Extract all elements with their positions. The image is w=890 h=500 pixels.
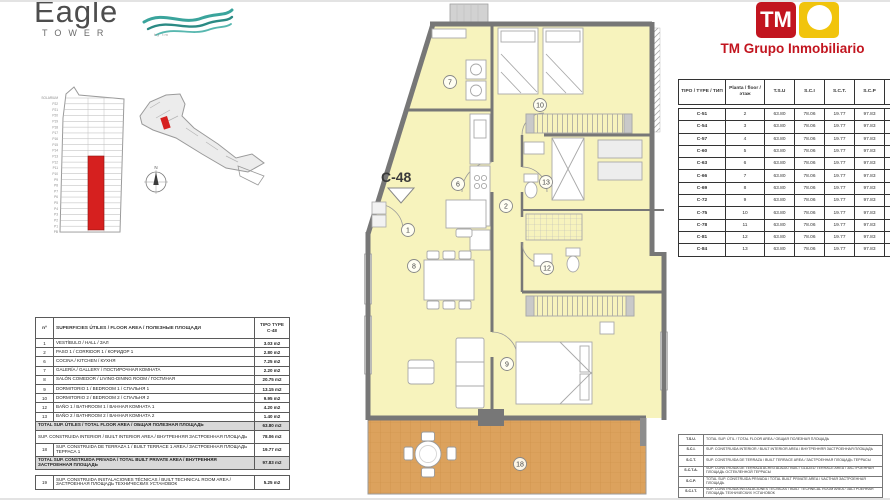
areas-cell: 9.95 m2 (255, 394, 290, 403)
areas-cell: PASO 1 / CORRIDOR 1 / КОРИДОР 1 (54, 348, 255, 357)
types-cell: 3 (726, 121, 765, 133)
types-cell: 5.25 (885, 231, 890, 243)
types-cell: C-60 (679, 145, 726, 157)
types-table-row: C-66763.8078.0619.7797.835.25 (679, 170, 890, 182)
room-label-bedroom2: 10 (534, 99, 547, 112)
areas-cell: DORMITORIO 2 / BEDROOM 2 / СПАЛЬНЯ 2 (54, 394, 255, 403)
types-cell: 11 (726, 219, 765, 231)
legend-cell: SUP. CONSTRUIDA DE TERRAZA / BUILT TERRA… (704, 456, 883, 467)
types-cell: 97.83 (855, 195, 885, 207)
areas-header-type: TIPO TYPE C-48 (255, 318, 290, 339)
areas-table: nº SUPERFICIES ÚTILES / FLOOR AREA / ПОЛ… (35, 317, 290, 470)
legend-row: T.S.U.TOTAL SUP. ÚTIL / TOTAL FLOOR AREA… (679, 435, 883, 446)
areas-cell: SALÓN COMEDOR / LIVING-DINING ROOM / ГОС… (54, 375, 255, 384)
types-table-row: C-841363.8078.0619.7797.835.25 (679, 244, 890, 256)
areas-cell: 4.20 m2 (255, 403, 290, 412)
svg-text:8: 8 (412, 264, 416, 271)
types-cell: 63.80 (765, 195, 795, 207)
types-cell: 78.06 (795, 231, 825, 243)
abbreviation-legend-wrap: T.S.U.TOTAL SUP. ÚTIL / TOTAL FLOOR AREA… (678, 434, 883, 498)
areas-cell: 63.80 m2 (255, 421, 290, 430)
areas-cell: TOTAL SUP. ÚTILES / TOTAL FLOOR AREA / О… (36, 421, 255, 430)
types-cell: 7 (726, 170, 765, 182)
room-label-corridor: 2 (500, 200, 513, 213)
terrace-pillar (478, 409, 504, 426)
areas-cell: 8 (36, 375, 54, 384)
areas-table-row: 13BAÑO 2 / BATHROOM 2 / ВАННАЯ КОМНАТА 2… (36, 412, 290, 421)
areas-cell: 18 (36, 443, 54, 456)
areas-cell: 5.25 m2 (255, 475, 290, 489)
types-cell: 63.80 (765, 207, 795, 219)
areas-table-row: 19SUP. CONSTRUIDA INSTALACIONES TÉCNICAS… (36, 475, 290, 489)
types-header-cell: S.C.P (855, 80, 885, 105)
types-cell: 78.06 (795, 207, 825, 219)
abbreviation-legend-table: T.S.U.TOTAL SUP. ÚTIL / TOTAL FLOOR AREA… (678, 434, 883, 498)
types-cell: C-51 (679, 109, 726, 121)
types-cell: 9 (726, 195, 765, 207)
types-cell: 5.25 (885, 170, 890, 182)
areas-cell: 3.03 m2 (255, 339, 290, 348)
areas-cell: 12 (36, 403, 54, 412)
types-table-row: C-63663.8078.0619.7797.835.25 (679, 158, 890, 170)
areas-cell: GALERÍA / GALLERY / ПОСТИРОЧНАЯ КОМНАТА (54, 366, 255, 375)
areas-table-row: 7GALERÍA / GALLERY / ПОСТИРОЧНАЯ КОМНАТА… (36, 366, 290, 375)
types-cell: 78.06 (795, 244, 825, 256)
areas-table-row: 6COCINA / KITCHEN / КУХНЯ7.25 m2 (36, 357, 290, 366)
areas-table-row: 12BAÑO 1 / BATHROOM 1 / ВАННАЯ КОМНАТА 1… (36, 403, 290, 412)
types-cell: C-75 (679, 207, 726, 219)
svg-text:1: 1 (406, 228, 410, 235)
types-cell: 97.83 (855, 109, 885, 121)
types-cell: 10 (726, 207, 765, 219)
areas-table-row: TOTAL SUP. ÚTILES / TOTAL FLOOR AREA / О… (36, 421, 290, 430)
areas-table-row: 8SALÓN COMEDOR / LIVING-DINING ROOM / ГО… (36, 375, 290, 384)
hall-closet-1 (372, 202, 386, 214)
types-cell: 97.83 (855, 158, 885, 170)
areas-table-row: 9DORMITORIO 1 / BEDROOM 1 / СПАЛЬНЯ 113.… (36, 384, 290, 393)
room-label-gallery: 7 (444, 76, 457, 89)
types-cell: C-63 (679, 158, 726, 170)
areas-cell: 10 (36, 394, 54, 403)
hall-closet-2 (372, 215, 386, 227)
areas-cell: 9 (36, 384, 54, 393)
areas-cell: 7 (36, 366, 54, 375)
areas-cell: 97.83 m2 (255, 456, 290, 469)
types-table-row: C-72963.8078.0619.7797.835.25 (679, 195, 890, 207)
types-cell: 19.77 (825, 109, 855, 121)
types-cell: 5.25 (885, 133, 890, 145)
types-cell: 78.06 (795, 195, 825, 207)
types-cell: 19.77 (825, 219, 855, 231)
legend-row: S.C.T.SUP. CONSTRUIDA DE TERRAZA / BUILT… (679, 456, 883, 467)
svg-text:12: 12 (543, 266, 551, 273)
types-cell: 2 (726, 109, 765, 121)
areas-table-row: 18SUP. CONSTRUIDA DE TERRAZA 1 / BUILT T… (36, 443, 290, 456)
legend-cell: SUP. CONSTRUIDA INTERIOR / BUILT INTERIO… (704, 445, 883, 456)
types-header-cell: Planta / floor / этаж (726, 80, 765, 105)
types-cell: 19.77 (825, 170, 855, 182)
room-label-kitchen: 6 (452, 178, 465, 191)
types-cell: 19.77 (825, 158, 855, 170)
legend-cell: S.C.I.T. (679, 487, 704, 498)
types-table-row: C-51263.8078.0619.7797.835.25 (679, 109, 890, 121)
areas-cell: 1.40 m2 (255, 412, 290, 421)
areas-table-row: 2PASO 1 / CORRIDOR 1 / КОРИДОР 12.80 m2 (36, 348, 290, 357)
types-cell: C-69 (679, 182, 726, 194)
svg-text:2: 2 (504, 204, 508, 211)
types-cell: 63.80 (765, 244, 795, 256)
types-cell: 78.06 (795, 219, 825, 231)
legend-cell: TOTAL SUP. ÚTIL / TOTAL FLOOR AREA / ОБЩ… (704, 435, 883, 446)
room-label-bedroom1: 9 (501, 358, 514, 371)
types-cell: 97.83 (855, 231, 885, 243)
types-cell: 5.25 (885, 145, 890, 157)
types-cell: 97.83 (855, 145, 885, 157)
svg-text:6: 6 (456, 182, 460, 189)
types-cell: 97.83 (855, 170, 885, 182)
areas-cell: SUP. CONSTRUIDA INSTALACIONES TÉCNICAS /… (54, 475, 255, 489)
unit-types-table: C-51263.8078.0619.7797.835.25C-54363.807… (678, 108, 890, 257)
areas-cell: SUP. CONSTRUIDA INTERIOR / BUILT INTERIO… (36, 430, 255, 443)
types-cell: C-66 (679, 170, 726, 182)
types-cell: 5.25 (885, 219, 890, 231)
legend-cell: S.C.P. (679, 477, 704, 488)
room-label-living: 8 (408, 260, 421, 273)
areas-cell: 19 (36, 475, 54, 489)
types-cell: 63.80 (765, 121, 795, 133)
legend-row: S.C.I.T.SUP. CONSTRUIDA INSTALACIONES TÉ… (679, 487, 883, 498)
types-cell: 19.77 (825, 182, 855, 194)
types-cell: 78.06 (795, 145, 825, 157)
types-cell: 78.06 (795, 182, 825, 194)
types-table-row: C-60563.8078.0619.7797.835.25 (679, 145, 890, 157)
types-cell: 5 (726, 145, 765, 157)
types-cell: 97.83 (855, 219, 885, 231)
areas-cell: 2.80 m2 (255, 348, 290, 357)
types-cell: 97.83 (855, 207, 885, 219)
unit-types-header: TIPO / TYPE / ТИПPlanta / floor / этажT.… (678, 79, 890, 105)
areas-cell: SUP. CONSTRUIDA DE TERRAZA 1 / BUILT TER… (54, 443, 255, 456)
room-label-bath1: 12 (541, 262, 554, 275)
legend-cell: S.C.T.A. (679, 466, 704, 477)
areas-cell: 78.06 m2 (255, 430, 290, 443)
types-cell: 63.80 (765, 182, 795, 194)
types-cell: 19.77 (825, 244, 855, 256)
types-header-cell: S.C.I.T (885, 80, 890, 105)
types-header-cell: T.S.U (765, 80, 795, 105)
areas-cell: 2 (36, 348, 54, 357)
svg-text:7: 7 (448, 80, 452, 87)
svg-text:9: 9 (505, 362, 509, 369)
legend-row: S.C.T.A.SUP. CONSTRUIDA DE TERRAZA ACRIS… (679, 466, 883, 477)
areas-cell: 6 (36, 357, 54, 366)
types-cell: 19.77 (825, 231, 855, 243)
svg-text:13: 13 (542, 180, 550, 187)
areas-cell: BAÑO 1 / BATHROOM 1 / ВАННАЯ КОМНАТА 1 (54, 403, 255, 412)
legend-cell: TOTAL SUP. CONSTRUIDA PRIVADA / TOTAL BU… (704, 477, 883, 488)
types-table-row: C-751063.8078.0619.7797.835.25 (679, 207, 890, 219)
areas-table-row: TOTAL SUP. CONSTRUIDA PRIVADA / TOTAL BU… (36, 456, 290, 469)
types-cell: C-54 (679, 121, 726, 133)
types-cell: 19.77 (825, 207, 855, 219)
svg-text:10: 10 (536, 103, 544, 110)
areas-cell: DORMITORIO 1 / BEDROOM 1 / СПАЛЬНЯ 1 (54, 384, 255, 393)
types-cell: 63.80 (765, 133, 795, 145)
types-cell: 4 (726, 133, 765, 145)
legend-cell: S.C.I. (679, 445, 704, 456)
areas-cell: 20.75 m2 (255, 375, 290, 384)
types-table-row: C-69863.8078.0619.7797.835.25 (679, 182, 890, 194)
technical-area-table: 19SUP. CONSTRUIDA INSTALACIONES TÉCNICAS… (35, 475, 290, 490)
types-cell: 19.77 (825, 195, 855, 207)
types-cell: 63.80 (765, 158, 795, 170)
room-label-hall: 1 (402, 224, 415, 237)
types-table-row: C-781163.8078.0619.7797.835.25 (679, 219, 890, 231)
areas-cell: 19.77 m2 (255, 443, 290, 456)
types-cell: 63.80 (765, 145, 795, 157)
areas-table-row: SUP. CONSTRUIDA INTERIOR / BUILT INTERIO… (36, 430, 290, 443)
types-cell: 5.25 (885, 182, 890, 194)
types-cell: C-57 (679, 133, 726, 145)
types-cell: 63.80 (765, 231, 795, 243)
types-table-row: C-811263.8078.0619.7797.835.25 (679, 231, 890, 243)
types-cell: 5.25 (885, 207, 890, 219)
areas-cell: COCINA / KITCHEN / КУХНЯ (54, 357, 255, 366)
areas-header-num: nº (36, 318, 54, 339)
plan-sheet-page: Eagle TOWER by tm TM TM Grupo Inmobiliar… (0, 0, 890, 500)
types-header-cell: S.C.T. (825, 80, 855, 105)
areas-table-row: 10DORMITORIO 2 / BEDROOM 2 / СПАЛЬНЯ 29.… (36, 394, 290, 403)
areas-table-row: 1VESTÍBULO / HALL / ЗАЛ3.03 m2 (36, 339, 290, 348)
types-cell: 63.80 (765, 170, 795, 182)
areas-cell: 13.15 m2 (255, 384, 290, 393)
types-cell: 12 (726, 231, 765, 243)
types-table-row: C-57463.8078.0619.7797.835.25 (679, 133, 890, 145)
core-stairs-block (450, 4, 488, 24)
types-cell: C-81 (679, 231, 726, 243)
types-cell: 19.77 (825, 121, 855, 133)
types-cell: 78.06 (795, 121, 825, 133)
areas-cell: 7.25 m2 (255, 357, 290, 366)
types-cell: 19.77 (825, 133, 855, 145)
types-cell: 97.83 (855, 121, 885, 133)
types-cell: 63.80 (765, 219, 795, 231)
areas-cell: 2.20 m2 (255, 366, 290, 375)
areas-cell: VESTÍBULO / HALL / ЗАЛ (54, 339, 255, 348)
types-cell: 19.77 (825, 145, 855, 157)
types-cell: C-72 (679, 195, 726, 207)
areas-header-desc: SUPERFICIES ÚTILES / FLOOR AREA / ПОЛЕЗН… (54, 318, 255, 339)
types-cell: 97.83 (855, 244, 885, 256)
legend-cell: S.C.T. (679, 456, 704, 467)
areas-cell: TOTAL SUP. CONSTRUIDA PRIVADA / TOTAL BU… (36, 456, 255, 469)
room-label-terrace: 18 (514, 458, 527, 471)
legend-row: S.C.I.SUP. CONSTRUIDA INTERIOR / BUILT I… (679, 445, 883, 456)
areas-table-wrap: nº SUPERFICIES ÚTILES / FLOOR AREA / ПОЛ… (35, 317, 280, 490)
areas-cell: 13 (36, 412, 54, 421)
svg-text:18: 18 (516, 462, 524, 469)
types-cell: 5.25 (885, 109, 890, 121)
types-cell: 78.06 (795, 133, 825, 145)
types-cell: 78.06 (795, 170, 825, 182)
types-table-row: C-54363.8078.0619.7797.835.25 (679, 121, 890, 133)
types-cell: C-78 (679, 219, 726, 231)
types-cell: 63.80 (765, 109, 795, 121)
legend-cell: T.S.U. (679, 435, 704, 446)
types-cell: 5.25 (885, 244, 890, 256)
legend-cell: SUP. CONSTRUIDA INSTALACIONES TÉCNICAS /… (704, 487, 883, 498)
types-cell: 5.25 (885, 121, 890, 133)
types-header-cell: S.C.I (795, 80, 825, 105)
areas-cell: 1 (36, 339, 54, 348)
types-cell: 78.06 (795, 109, 825, 121)
types-cell: 97.83 (855, 133, 885, 145)
types-cell: 13 (726, 244, 765, 256)
types-cell: 5.25 (885, 195, 890, 207)
types-cell: C-84 (679, 244, 726, 256)
room-label-bath2: 13 (540, 176, 553, 189)
types-cell: 8 (726, 182, 765, 194)
types-cell: 5.25 (885, 158, 890, 170)
unit-types-table-wrap: TIPO / TYPE / ТИПPlanta / floor / этажT.… (678, 79, 881, 257)
unit-label-text: C-48 (381, 169, 412, 185)
legend-cell: SUP. CONSTRUIDA DE TERRAZA ACRISTALADA /… (704, 466, 883, 477)
types-cell: 97.83 (855, 182, 885, 194)
areas-cell: BAÑO 2 / BATHROOM 2 / ВАННАЯ КОМНАТА 2 (54, 412, 255, 421)
legend-row: S.C.P.TOTAL SUP. CONSTRUIDA PRIVADA / TO… (679, 477, 883, 488)
types-cell: 6 (726, 158, 765, 170)
types-header-cell: TIPO / TYPE / ТИП (679, 80, 726, 105)
types-cell: 78.06 (795, 158, 825, 170)
kitchen-counters (470, 114, 490, 250)
